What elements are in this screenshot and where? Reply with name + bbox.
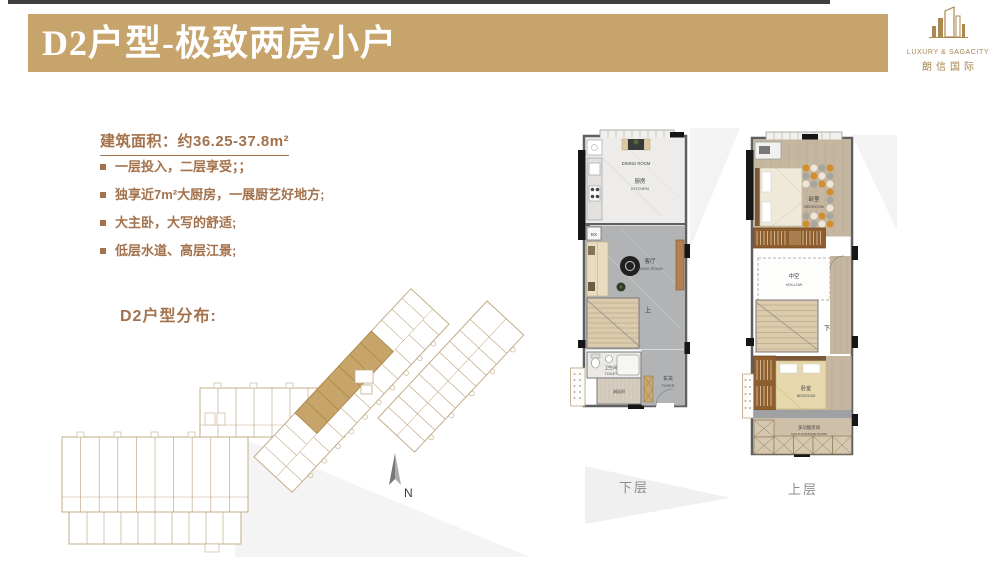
dining-label-en: DINING ROOM — [622, 161, 651, 166]
area-heading: 建筑面积：约36.25-37.8m² — [100, 130, 289, 156]
sink — [589, 163, 600, 175]
headboard — [776, 356, 826, 361]
bullet-square-icon — [100, 192, 106, 198]
north-label: N — [404, 486, 413, 500]
living-label-en: LIVING ROOM — [637, 267, 662, 271]
bedroom2-zone: 卧室 BEDROOM — [754, 356, 852, 410]
entry-door-gap — [656, 403, 674, 408]
fridge — [587, 140, 602, 155]
pillow — [803, 364, 820, 373]
dining-chair — [622, 139, 628, 150]
stairs-up-label: 上 — [645, 305, 652, 314]
floorplan-upper: 卧室 BEDROOM 中空 HOLLOW — [742, 128, 864, 463]
kitchen-label-en: KITCHEN — [631, 186, 649, 191]
foyer-label-en: FOYER — [662, 384, 675, 388]
shower-label-zh: 淋浴间 — [613, 389, 625, 394]
bedroom1-label-en: BEDROOM — [804, 205, 824, 209]
toilet-fixture — [592, 358, 600, 368]
pillow — [762, 172, 771, 192]
stairs-down-label: 下 — [824, 324, 831, 332]
bullet-square-icon — [100, 248, 106, 254]
toilet-zone: 卫生间 TOILET — [587, 352, 641, 378]
bx-label: BX — [591, 232, 597, 237]
equipment-platform — [571, 368, 586, 406]
wardrobe — [754, 228, 826, 248]
multi-label-zh: 多功能房间 — [798, 424, 820, 431]
shoe-cabinet — [644, 376, 653, 402]
bullet-square-icon — [100, 220, 106, 226]
tv-console — [676, 240, 684, 290]
foyer-zone: 玄关 FOYER — [642, 350, 685, 408]
pillow — [762, 202, 771, 222]
multi-label-en: MULTI-PURPOSE ROOM — [791, 432, 827, 436]
living-label-zh: 客厅 — [644, 257, 656, 265]
bullet-square-icon — [100, 164, 106, 170]
headboard — [755, 168, 760, 226]
toilet-label-zh: 卫生间 — [605, 364, 618, 371]
bathtub — [617, 355, 639, 375]
pillow — [780, 364, 797, 373]
title-banner: D2户型-极致两房小户 — [28, 14, 888, 72]
list-item: 独享近7m²大厨房，一展厨艺好地方; — [100, 188, 324, 202]
logo-line-zh: 朗信国际 — [893, 58, 1000, 73]
corridor — [830, 256, 851, 354]
top-accent-bar — [8, 0, 830, 4]
multipurpose-zone: 多功能房间 MULTI-PURPOSE ROOM — [754, 418, 852, 454]
page-title: D2户型-极致两房小户 — [28, 14, 888, 72]
washbasin — [606, 356, 613, 363]
stone-strip — [754, 410, 852, 418]
bedroom2-label-zh: 卧室 — [801, 385, 811, 392]
pillow — [588, 282, 595, 291]
kitchen-label-zh: 厨房 — [634, 177, 646, 185]
shower-room: 淋浴间 — [597, 378, 641, 404]
north-arrow-icon — [389, 453, 401, 485]
hollow-label-zh: 中空 — [788, 272, 800, 280]
selling-points-list: 一层投入，二层享受；； 独享近7m²大厨房，一展厨艺好地方; 大主卧，大写的舒适… — [100, 160, 324, 272]
hollow-void: 中空 HOLLOW — [758, 258, 830, 300]
dining-chair — [644, 139, 650, 150]
site-plan: N — [55, 285, 530, 560]
pillow — [588, 246, 595, 255]
coffee-table — [620, 256, 640, 276]
brand-logo: LUXURY & SAGACITY 朗信国际 — [893, 6, 1000, 73]
list-item: 低层水道、高层江景; — [100, 244, 324, 258]
equipment-platform — [743, 374, 754, 418]
bedroom2-label-en: BEDROOM — [797, 394, 815, 398]
toilet-label-en: TOILET — [605, 372, 618, 376]
building-skyline-icon — [924, 6, 972, 42]
hollow-label-en: HOLLOW — [786, 283, 803, 287]
list-item: 大主卧，大写的舒适; — [100, 216, 324, 230]
logo-line-en: LUXURY & SAGACITY — [893, 49, 1000, 56]
lower-plan-caption: 下层 — [594, 477, 674, 496]
wardrobe — [754, 356, 776, 410]
upper-plan-caption: 上层 — [763, 479, 843, 498]
bedroom1-label-zh: 卧室 — [808, 195, 820, 203]
foyer-label-zh: 玄关 — [663, 375, 673, 382]
site-wing-west — [62, 432, 248, 552]
floorplan-lower: DINING ROOM 厨房 KITCHEN BX 客厅 LIVING ROOM — [570, 128, 698, 413]
bedroom1-zone: 卧室 BEDROOM — [754, 140, 851, 249]
list-item: 一层投入，二层享受；； — [100, 160, 324, 174]
kitchen-dining-zone: DINING ROOM 厨房 KITCHEN — [586, 138, 685, 224]
